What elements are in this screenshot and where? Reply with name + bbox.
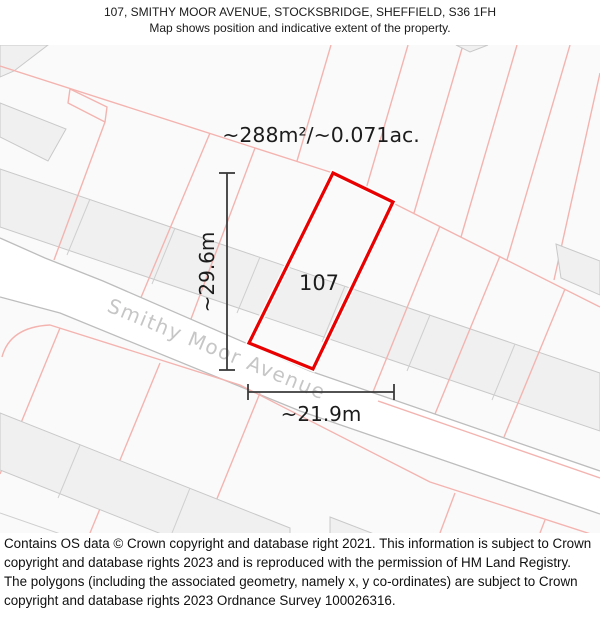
area-label: ~288m²/~0.071ac.: [222, 123, 420, 147]
dim-vertical-label: ~29.6m: [195, 232, 219, 313]
map-container: Smithy Moor Avenue ~29.6m ~21.9m ~288m²/…: [0, 45, 600, 533]
plot-number-label: 107: [299, 271, 339, 295]
property-map: Smithy Moor Avenue ~29.6m ~21.9m ~288m²/…: [0, 45, 600, 533]
title-block: 107, SMITHY MOOR AVENUE, STOCKSBRIDGE, S…: [0, 0, 600, 36]
copyright-footer: Contains OS data © Crown copyright and d…: [4, 534, 594, 610]
page-title: 107, SMITHY MOOR AVENUE, STOCKSBRIDGE, S…: [0, 5, 600, 21]
dim-horizontal-label: ~21.9m: [281, 402, 362, 426]
page-subtitle: Map shows position and indicative extent…: [0, 21, 600, 37]
